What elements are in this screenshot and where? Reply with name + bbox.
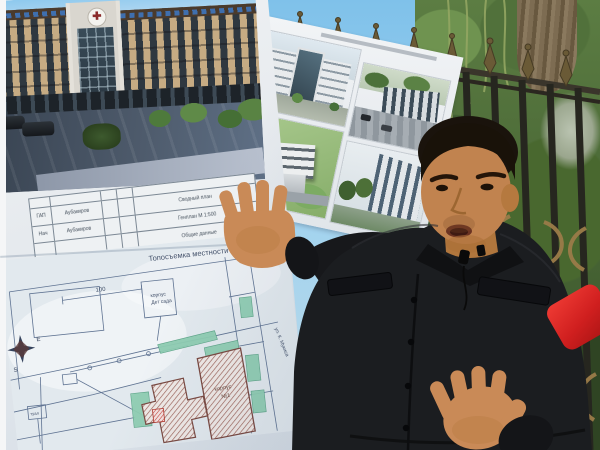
eye	[436, 185, 448, 191]
presenter	[0, 0, 600, 450]
photo-scene: ✚ Г	[0, 0, 600, 450]
mustache-shadow	[443, 215, 475, 233]
ear	[501, 184, 519, 212]
eye	[481, 184, 494, 191]
